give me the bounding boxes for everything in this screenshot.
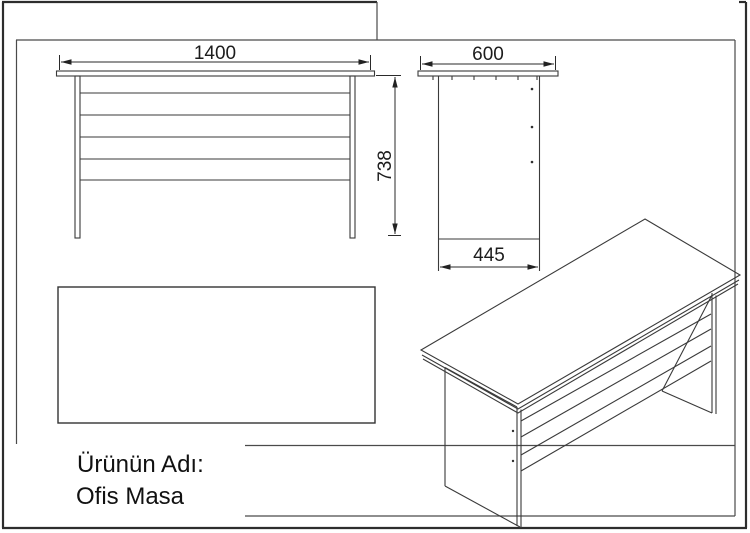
- front-view: 1400 738: [57, 43, 402, 238]
- top-view: [58, 287, 375, 423]
- front-view-right-leg: [350, 76, 355, 238]
- side-view-leg-panel: [439, 76, 540, 271]
- title-block: Ürünün Adı: Ofis Masa: [76, 451, 204, 510]
- front-width-label: 1400: [194, 43, 236, 64]
- screw-dot: [512, 460, 514, 462]
- side-view: 600 445: [418, 44, 558, 271]
- desk-top-edge-band: [422, 280, 739, 413]
- dimension-side-width: 600: [421, 44, 556, 70]
- dimension-front-width: 1400: [60, 43, 371, 70]
- side-view-screw-dots: [531, 88, 534, 164]
- front-height-label: 738: [375, 150, 396, 182]
- drawing-canvas: 1400 738: [0, 0, 750, 533]
- inner-border: [16, 40, 735, 516]
- side-view-dowel-ticks: [433, 76, 537, 80]
- top-view-outline: [58, 287, 375, 423]
- perspective-view: [421, 219, 740, 528]
- dimension-front-height: 738: [375, 76, 401, 236]
- side-width-label: 600: [472, 44, 504, 65]
- product-label: Ürünün Adı:: [77, 451, 204, 478]
- desk-right-panel: [662, 293, 716, 414]
- technical-drawing-sheet: 1400 738: [0, 0, 750, 533]
- dimension-side-depth: 445: [440, 245, 538, 267]
- product-name: Ofis Masa: [76, 483, 185, 510]
- front-view-left-leg: [75, 76, 80, 238]
- front-view-desktop-slab: [57, 71, 375, 76]
- screw-dot: [512, 430, 514, 432]
- desk-back-rails: [521, 314, 711, 471]
- desk-left-panel: [445, 368, 521, 529]
- outer-border: [2, 2, 747, 528]
- side-depth-label: 445: [473, 245, 505, 266]
- front-view-rails: [80, 93, 350, 180]
- side-view-desktop-slab: [418, 71, 558, 76]
